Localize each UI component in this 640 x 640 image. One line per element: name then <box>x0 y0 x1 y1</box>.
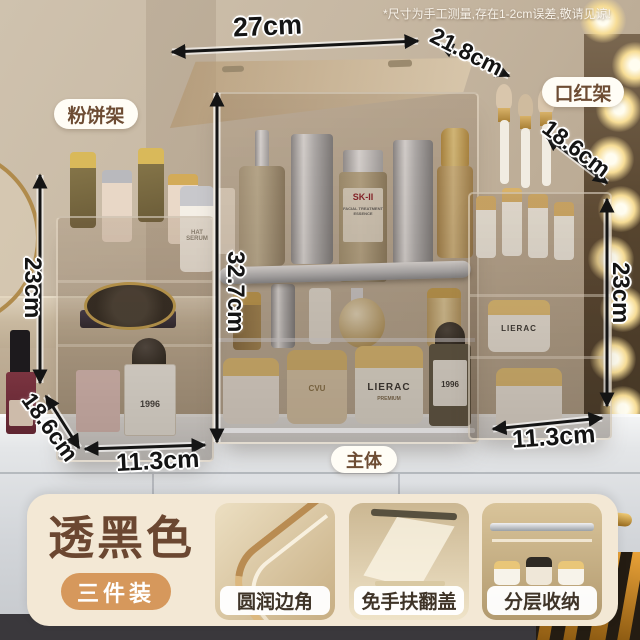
shelf-graphic <box>492 539 592 542</box>
mini-jar-graphic <box>526 557 552 585</box>
dimension-label-main-height: 32.7cm <box>223 251 247 332</box>
feature-thumb-flip-lid: 免手扶翻盖 <box>349 503 469 620</box>
feature-caption: 圆润边角 <box>220 586 330 615</box>
tag-lipstick-rack: 口红架 <box>542 77 624 107</box>
dimension-label-top-width: 27cm <box>232 12 302 42</box>
product-scene: HAT SERUM 1996 SK-II FACIAL TREATMENT ES… <box>0 0 640 640</box>
dimension-label-right-width: 11.3cm <box>511 422 596 453</box>
color-name: 透黑色 <box>48 502 195 568</box>
dimension-arrow <box>172 41 418 52</box>
dimension-label-left-width: 11.3cm <box>115 447 200 476</box>
shelf-graphic <box>490 523 594 531</box>
mini-jar-graphic <box>558 561 584 585</box>
feature-caption: 免手扶翻盖 <box>354 586 464 615</box>
tag-main-body: 主体 <box>331 446 397 473</box>
info-panel: 透黑色 三件装 圆润边角 免手扶翻盖 分层收纳 <box>27 494 618 626</box>
measurement-disclaimer: *尺寸为手工测量,存在1-2cm误差,敬请见谅! <box>383 5 611 22</box>
tag-powder-rack: 粉饼架 <box>54 99 138 129</box>
dimension-label-right-height: 23cm <box>608 262 632 323</box>
feature-thumb-rounded-corner: 圆润边角 <box>215 503 335 620</box>
feature-caption: 分层收纳 <box>487 586 597 615</box>
set-count-badge: 三件装 <box>61 573 171 610</box>
mini-jar-graphic <box>494 561 520 585</box>
dimension-label-left-height: 23cm <box>20 257 44 318</box>
lid-edge-graphic <box>371 509 457 520</box>
feature-thumb-layered-storage: 分层收纳 <box>482 503 602 620</box>
